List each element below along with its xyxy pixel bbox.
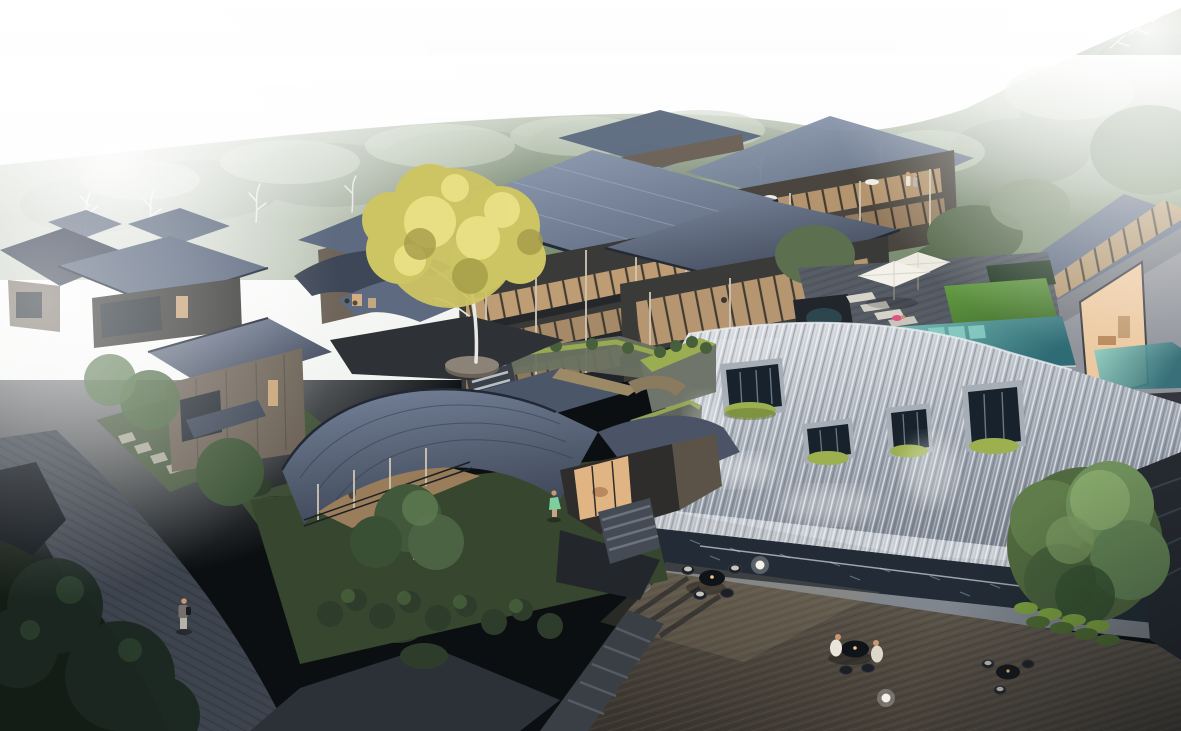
waterfall-niche [802,418,855,465]
waterfall-niche [720,358,786,420]
planter-rim [445,356,499,374]
guest-figure [721,297,727,303]
wire-chair [862,664,875,673]
table-candle [710,575,714,579]
wire-chair [721,589,734,598]
recessed-light [751,556,769,574]
table-candle [853,646,857,650]
waterfall-niche [962,380,1026,454]
guest-figure [353,301,358,306]
wire-chair [682,566,695,575]
guest-figure [345,299,350,304]
guest-on-lounger [892,315,902,321]
architectural-rendering-canvas [0,0,1181,731]
wire-chair [694,591,707,600]
resort-scene [0,0,1181,731]
lit-opening [368,298,376,308]
recessed-light [877,689,895,707]
wire-chair [840,666,853,675]
wire-chair [729,565,742,574]
